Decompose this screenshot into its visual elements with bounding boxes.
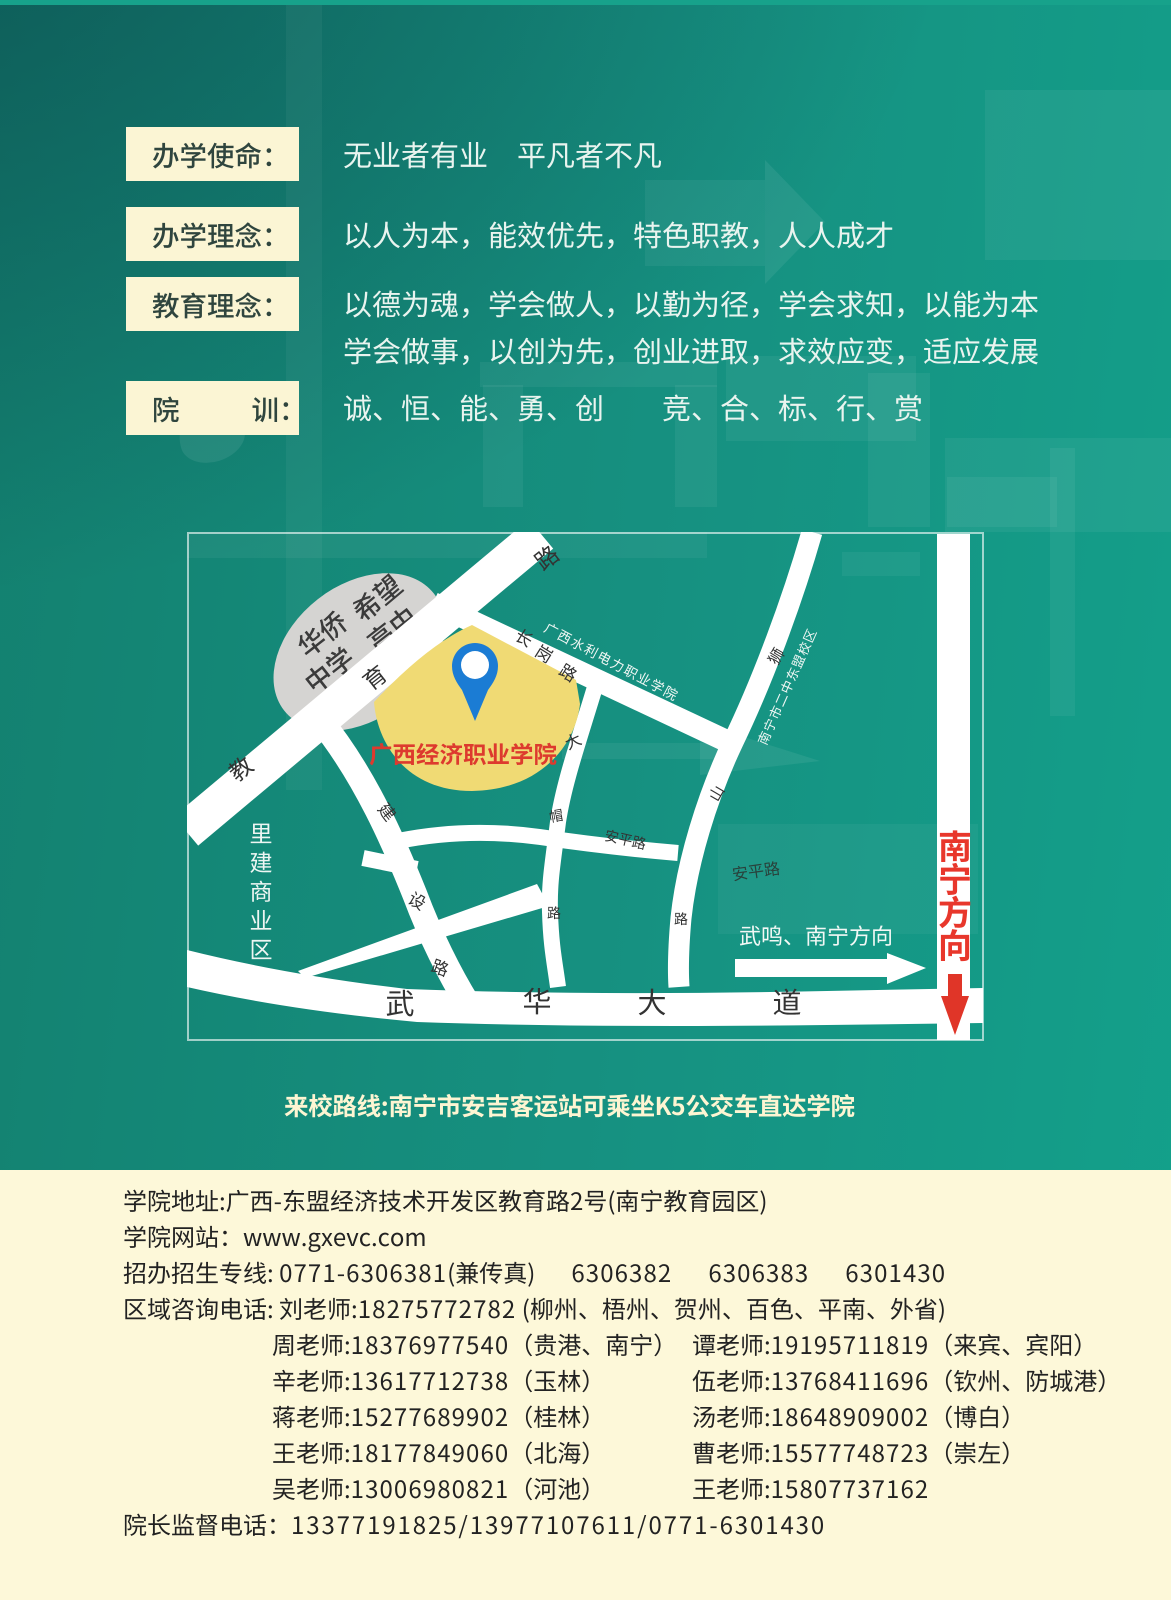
svg-text:大: 大 [637, 980, 666, 1022]
svg-text:向: 向 [938, 919, 972, 968]
svg-text:武鸣、南宁方向: 武鸣、南宁方向 [739, 919, 893, 951]
svg-text:路: 路 [674, 909, 688, 929]
svg-text:广西经济职业学院: 广西经济职业学院 [369, 736, 557, 770]
svg-text:华: 华 [522, 979, 551, 1021]
svg-text:路: 路 [547, 903, 561, 923]
svg-text:道: 道 [772, 980, 801, 1022]
svg-text:区: 区 [250, 931, 273, 965]
svg-text:武: 武 [385, 981, 414, 1023]
